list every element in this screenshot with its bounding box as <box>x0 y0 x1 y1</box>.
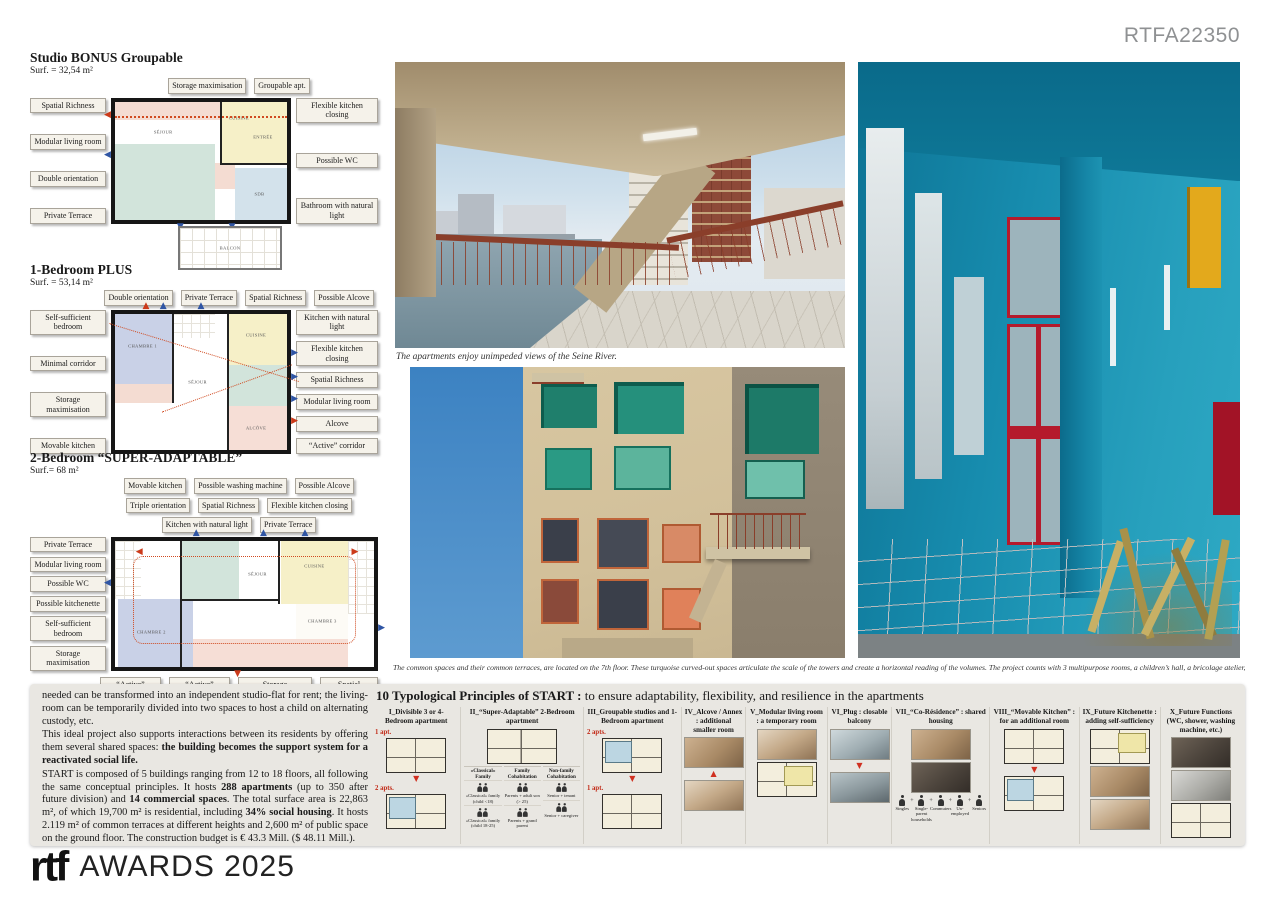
principles-title-bold: 10 Typological Principles of START : <box>376 688 582 703</box>
plus-sign: + <box>968 798 971 804</box>
group-sub-label: Senior + tenant <box>543 793 580 798</box>
plan-annotation: Storage maximisation <box>168 78 246 94</box>
plan-annotation: Flexible kitchen closing <box>296 341 378 366</box>
group-person-icons <box>468 808 498 817</box>
plan-annotation: Minimal corridor <box>30 356 106 372</box>
plan-annotation: Spatial Richness <box>245 290 306 306</box>
photo-caption: The apartments enjoy unimpeded views of … <box>396 352 846 362</box>
plan-labels-right: Flexible kitchen closingPossible WCBathr… <box>296 98 378 224</box>
apartment-count-badge: 1 apt. <box>375 729 391 736</box>
photo-thumbnail <box>1171 737 1231 768</box>
plan-thumbnail <box>602 794 662 829</box>
orange-window <box>541 518 580 563</box>
household-label: Single-parent households <box>911 806 932 822</box>
room-kitchen <box>229 314 287 366</box>
opening-mid <box>954 277 985 456</box>
description-paragraph: START is composed of 5 buildings ranging… <box>42 769 368 844</box>
principle-7: VII_“Co-Résidence” : shared housingSingl… <box>891 707 989 844</box>
person-icon <box>938 795 944 806</box>
principle-figures: ▼ <box>831 729 889 843</box>
red-arrow-icon: ▼ <box>629 775 635 783</box>
principle-figures: Singles+Single-parent households+Commute… <box>895 729 986 843</box>
wall-light <box>1164 265 1170 331</box>
orange-window <box>541 579 580 624</box>
room-label: SÉJOUR <box>188 379 207 384</box>
apartment-count-badge: 2 apts. <box>587 729 606 736</box>
household-type: Singles <box>895 795 909 811</box>
plan-title: 2-Bedroom “SUPER-ADAPTABLE” <box>30 450 378 466</box>
principles-header: 10 Typological Principles of START : to … <box>372 686 1241 707</box>
group-sub-label: «Classical» family (child 18-25) <box>464 818 501 829</box>
plan-section-studio: Studio BONUS Groupable Surf. = 32,54 m² … <box>30 50 378 270</box>
plan-labels-left: Self-sufficient bedroomMinimal corridorS… <box>30 310 106 454</box>
plus-sign: + <box>929 798 932 804</box>
principle-figures: ▼ <box>993 729 1075 843</box>
principle-title: III_Groupable studios and 1-Bedroom apar… <box>587 708 678 727</box>
cohabitation-group: Family CohabitationParents + adult son (… <box>504 766 541 830</box>
photo-thumbnail <box>1171 770 1231 801</box>
bottom-band: needed can be transformed into an indepe… <box>30 684 1245 846</box>
floorplan-1bedroom: CHAMBRE 1 SÉJOUR CUISINE ALCÔVE ▲ ▲ ▲ ▶ … <box>111 310 291 454</box>
person-icon <box>899 795 905 806</box>
room-label: CHAMBRE 1 <box>128 344 157 349</box>
plan-annotation: Spatial Richness <box>296 372 378 388</box>
plan-annotation: Flexible kitchen closing <box>296 98 378 123</box>
group-person-icons <box>468 784 498 793</box>
plan-annotation: Spatial Richness <box>30 98 106 114</box>
plan-annotation: Possible kitchenette <box>30 596 106 612</box>
project-description: needed can be transformed into an indepe… <box>36 688 374 844</box>
group-person-icons <box>507 808 537 817</box>
room-closet <box>215 163 236 189</box>
photo-thumbnail <box>830 772 890 803</box>
household-label: Singles <box>896 806 910 811</box>
principle-title: II_“Super-Adaptable” 2-Bedroom apartment <box>464 708 579 727</box>
room-bedroom <box>115 314 173 385</box>
room-storage <box>115 384 173 403</box>
principle-4: IV_Alcove / Annex : additional smaller r… <box>681 707 746 844</box>
flow-loop <box>133 556 356 644</box>
principle-1: I_Divisible 3 or 4-Bedroom apartment1 ap… <box>372 707 460 844</box>
principle-title: VII_“Co-Résidence” : shared housing <box>895 708 986 727</box>
plus-sign: + <box>910 798 913 804</box>
plan-thumbnail <box>602 738 662 773</box>
flow-line <box>115 116 287 118</box>
group-sub: Parents + grand parent <box>504 805 541 830</box>
rtf-logo: rtf <box>30 849 66 886</box>
group-person-icons <box>546 784 576 793</box>
plan-thumbnail <box>757 762 817 797</box>
plan-title: Studio BONUS Groupable <box>30 50 378 66</box>
plan-thumbnail <box>386 738 446 773</box>
plan-thumbnail <box>1171 803 1231 838</box>
group-sub: «Classical» family (child 18-25) <box>464 805 501 830</box>
plan-labels-top: Movable kitchenPossible washing machineP… <box>100 478 378 533</box>
plan-annotation: Double orientation <box>30 171 106 187</box>
opening-left-2 <box>915 193 942 479</box>
description-paragraph: needed can be transformed into an indepe… <box>42 690 368 728</box>
teal-window-right <box>745 460 806 499</box>
group-header: Family Cohabitation <box>504 768 541 780</box>
principle-title: VI_Plug : closable balcony <box>831 708 889 727</box>
concrete-ceiling <box>395 62 845 176</box>
room-terrace <box>173 314 214 338</box>
orange-window <box>597 518 649 569</box>
salmon-panel <box>662 524 701 563</box>
typological-principles: 10 Typological Principles of START : to … <box>372 686 1241 844</box>
apartment-count-badge: 1 apt. <box>587 785 603 792</box>
principle-title: I_Divisible 3 or 4-Bedroom apartment <box>375 708 457 727</box>
plan-labels-left: Spatial RichnessModular living roomDoubl… <box>30 98 106 224</box>
room-label: ALCÔVE <box>246 425 266 430</box>
person-icon <box>957 795 963 806</box>
plan-labels-right: Kitchen with natural lightFlexible kitch… <box>296 310 378 454</box>
bold-phrase: 288 apartments <box>221 782 292 793</box>
room-kitchen <box>222 102 287 163</box>
principle-title: X_Future Functions (WC, shower, washing … <box>1164 708 1238 735</box>
description-paragraph: This ideal project also supports interac… <box>42 729 368 767</box>
plan-thumbnail <box>1004 776 1064 811</box>
plan-annotation: Private Terrace <box>30 208 106 224</box>
group-sub: Senior + tenant <box>543 780 580 799</box>
plan-surface: Surf. = 53,14 m² <box>30 278 378 288</box>
red-window-upper <box>1007 217 1063 318</box>
red-accent <box>1213 402 1240 515</box>
plan-annotation: Possible Alcove <box>314 290 373 306</box>
room-label: SÉJOUR <box>154 130 173 135</box>
plus-sign: + <box>949 798 952 804</box>
loggia-column <box>1060 157 1102 598</box>
floorplan-2bedroom: SÉJOUR CUISINE CHAMBRE 2 CHAMBRE 3 ◀ ▶ ▲… <box>111 537 378 671</box>
photo-thumbnail <box>684 737 744 768</box>
photo-thumbnail <box>1090 799 1150 830</box>
room-label: SDB <box>255 191 265 196</box>
principle-9: IX_Future Kitchenette : adding self-suff… <box>1079 707 1160 844</box>
group-sub-label: Parents + grand parent <box>504 818 541 829</box>
group-sub-label: Senior + caregiver <box>543 813 580 818</box>
plan-annotation: Possible WC <box>30 576 106 592</box>
person-icon <box>562 784 567 793</box>
person-icon <box>918 795 924 806</box>
person-icon <box>523 808 528 817</box>
photo-caption: The common spaces and their common terra… <box>393 663 1245 672</box>
principle-figures: «Classical» Family«Classical» family (ch… <box>464 729 579 843</box>
plan-annotation: Kitchen with natural light <box>296 310 378 335</box>
photo-thumbnail <box>1090 766 1150 797</box>
plan-annotation: Storage maximisation <box>30 392 106 417</box>
balcony-railing <box>710 513 806 550</box>
person-icon <box>976 795 982 806</box>
group-person-icons <box>507 784 537 793</box>
photo-turquoise-loggia <box>858 62 1240 658</box>
person-icon <box>478 784 483 793</box>
room-label: ENTRÉE <box>253 134 272 139</box>
person-icon <box>483 784 488 793</box>
teal-recess <box>614 382 684 434</box>
photo-thumbnail <box>911 762 971 793</box>
plan-surface: Surf.= 68 m² <box>30 466 378 476</box>
plan-annotation: Modular living room <box>30 134 106 150</box>
room-living <box>115 144 215 220</box>
small-balcony <box>532 373 584 384</box>
photo-thumbnail <box>830 729 890 760</box>
teal-window <box>545 448 593 490</box>
group-person-icons <box>546 803 576 812</box>
railing-pickets <box>418 242 675 285</box>
cohabitation-group: Non-family CohabitationSenior + tenantSe… <box>543 766 580 830</box>
principle-title: VIII_“Movable Kitchen” : for an addition… <box>993 708 1075 727</box>
teal-window <box>614 446 670 491</box>
red-arrow-icon: ▲ <box>710 770 716 778</box>
concrete-column <box>395 108 436 297</box>
plan-annotation: Storage maximisation <box>30 646 106 671</box>
household-type: Un-employed <box>953 795 967 817</box>
person-icon <box>523 784 528 793</box>
plan-section-1bedroom: 1-Bedroom PLUS Surf. = 53,14 m² Double o… <box>30 262 378 454</box>
principle-figures <box>1083 729 1157 843</box>
plan-title: 1-Bedroom PLUS <box>30 262 378 278</box>
red-arrow-icon: ▼ <box>856 762 862 770</box>
plan-annotation: Possible washing machine <box>194 478 286 494</box>
principles-title-rest: to ensure adaptability, flexibility, and… <box>582 688 924 703</box>
plan-annotation: Groupable apt. <box>254 78 310 94</box>
wall-light <box>1110 288 1116 365</box>
photo-facade <box>410 367 845 658</box>
household-type: Seniors <box>972 795 986 811</box>
photo-thumbnail <box>757 729 817 760</box>
group-sub-label: «Classical» family (child <18) <box>464 793 501 804</box>
plan-annotation: Possible Alcove <box>295 478 354 494</box>
bold-phrase: 34% social housing <box>246 807 332 818</box>
person-icon <box>478 808 483 817</box>
household-label: Un-employed <box>951 806 969 817</box>
person-icon <box>562 803 567 812</box>
plan-annotation: Possible WC <box>296 153 378 169</box>
principle-title: IV_Alcove / Annex : additional smaller r… <box>685 708 743 735</box>
group-header: «Classical» Family <box>464 768 501 780</box>
group-sub: Parents + adult son (> 25) <box>504 780 541 805</box>
principle-3: III_Groupable studios and 1-Bedroom apar… <box>583 707 681 844</box>
plan-labels-top: Storage maximisationGroupable apt. <box>100 78 378 94</box>
group-sub-label: Parents + adult son (> 25) <box>504 793 541 804</box>
bold-phrase: 14 commercial spaces <box>129 794 227 805</box>
principle-figures <box>749 729 823 843</box>
principle-5: V_Modular living room : a temporary room <box>745 707 826 844</box>
plan-section-2bedroom: 2-Bedroom “SUPER-ADAPTABLE” Surf.= 68 m²… <box>30 450 378 712</box>
plan-annotation: Modular living room <box>30 557 106 573</box>
household-type: Single-parent households <box>915 795 929 822</box>
plan-thumbnail <box>386 794 446 829</box>
principle-6: VI_Plug : closable balcony▼ <box>827 707 892 844</box>
rtf-awards-footer: rtf AWARDS 2025 <box>30 848 295 887</box>
principles-columns: I_Divisible 3 or 4-Bedroom apartment1 ap… <box>372 707 1241 844</box>
person-icon <box>556 784 561 793</box>
plan-thumbnail <box>487 729 557 764</box>
awards-text: AWARDS 2025 <box>79 850 295 884</box>
loggia-ceiling <box>858 62 1240 181</box>
plan-annotation: Private Terrace <box>30 537 106 553</box>
photo-terrace-seine <box>395 62 845 348</box>
floorplan-studio: SÉJOUR CUISINE ENTRÉE SDB ◀ ◀ ▼ ▼ <box>111 98 291 224</box>
plan-annotation: Bathroom with natural light <box>296 198 378 223</box>
text-run: needed can be transformed into an indepe… <box>42 690 368 727</box>
household-label: Commuters <box>930 806 951 811</box>
person-icon <box>517 808 522 817</box>
principle-figures <box>1164 737 1238 843</box>
apartment-count-badge: 2 apts. <box>375 785 394 792</box>
plan-thumbnail <box>1004 729 1064 764</box>
photo-thumbnail <box>911 729 971 760</box>
room-label: BALCON <box>220 245 241 250</box>
person-icon <box>517 784 522 793</box>
household-label: Seniors <box>972 806 986 811</box>
principle-title: V_Modular living room : a temporary room <box>749 708 823 727</box>
principle-10: X_Future Functions (WC, shower, washing … <box>1160 707 1241 844</box>
cohabitation-groups: «Classical» Family«Classical» family (ch… <box>464 766 579 830</box>
plan-annotation: Spatial Richness <box>198 498 259 514</box>
photo-thumbnail <box>684 780 744 811</box>
principle-figures: 1 apt.▼2 apts. <box>375 729 457 843</box>
plan-annotation: Movable kitchen <box>124 478 186 494</box>
teal-recess-right <box>745 384 819 454</box>
plan-annotation: Flexible kitchen closing <box>267 498 352 514</box>
room-dining <box>229 365 287 406</box>
plan-labels-left: Private TerraceModular living roomPossib… <box>30 537 106 671</box>
plan-annotation: Triple orientation <box>126 498 190 514</box>
plan-annotation: Kitchen with natural light <box>162 517 252 533</box>
orange-window <box>597 579 649 630</box>
facade-base <box>562 638 693 658</box>
red-arrow-icon: ▼ <box>1031 766 1037 774</box>
principle-8: VIII_“Movable Kitchen” : for an addition… <box>989 707 1078 844</box>
plan-annotation: Private Terrace <box>181 290 237 306</box>
group-sub: Senior + caregiver <box>543 800 580 819</box>
yellow-accent <box>1187 187 1221 288</box>
group-header: Non-family Cohabitation <box>543 768 580 780</box>
principle-2: II_“Super-Adaptable” 2-Bedroom apartment… <box>460 707 582 844</box>
opening-left <box>866 128 904 509</box>
household-type: Commuters <box>934 795 948 811</box>
plan-annotation: Self-sufficient bedroom <box>30 310 106 335</box>
plan-surface: Surf. = 32,54 m² <box>30 66 378 76</box>
sky <box>410 367 523 658</box>
plan-annotation: Modular living room <box>296 394 378 410</box>
principle-title: IX_Future Kitchenette : adding self-suff… <box>1083 708 1157 727</box>
person-icon <box>483 808 488 817</box>
person-icon <box>556 803 561 812</box>
plan-annotation: Alcove <box>296 416 378 432</box>
group-sub: «Classical» family (child <18) <box>464 780 501 805</box>
teal-recess <box>541 384 598 428</box>
household-types: Singles+Single-parent households+Commute… <box>895 795 986 822</box>
principle-figures: ▲ <box>685 737 743 843</box>
plan-thumbnail <box>1090 729 1150 764</box>
plan-annotation: Self-sufficient bedroom <box>30 616 106 641</box>
entry-code: RTFA22350 <box>1124 24 1240 48</box>
principle-figures: 2 apts.▼1 apt. <box>587 729 678 843</box>
cohabitation-group: «Classical» Family«Classical» family (ch… <box>464 766 501 830</box>
red-arrow-icon: ▼ <box>413 775 419 783</box>
room-label: CUISINE <box>246 333 266 338</box>
award-board: RTFA22350 Studio BONUS Groupable Surf. =… <box>0 0 1273 900</box>
